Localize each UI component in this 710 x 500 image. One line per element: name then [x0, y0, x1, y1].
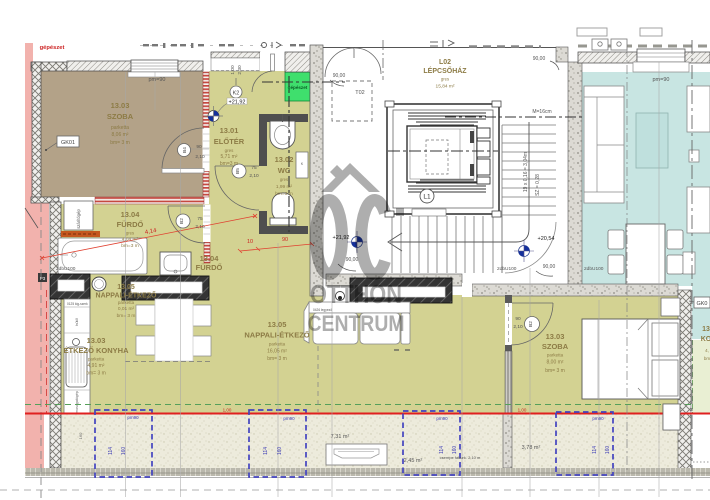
- svg-text:bm=3 m: bm=3 m: [121, 243, 138, 249]
- svg-text:2,10: 2,10: [195, 154, 205, 160]
- svg-text:160: 160: [78, 432, 83, 439]
- svg-text:2dbU100: 2dbU100: [584, 266, 604, 272]
- svg-text:7,31 m²: 7,31 m²: [331, 434, 350, 440]
- svg-text:15,84 m²: 15,84 m²: [436, 84, 455, 90]
- svg-text:90,00: 90,00: [533, 56, 546, 62]
- svg-text:bm=3 m: bm=3 m: [275, 191, 292, 197]
- svg-text:75: 75: [251, 165, 257, 171]
- svg-text:75: 75: [197, 216, 203, 222]
- svg-text:1,99 m²: 1,99 m²: [276, 184, 293, 190]
- svg-text:90: 90: [282, 237, 288, 243]
- svg-text:gépészet: gépészet: [40, 45, 65, 51]
- svg-text:parketta: parketta: [547, 353, 564, 358]
- svg-text:B2: B2: [528, 321, 534, 327]
- svg-text:bm= 3 m: bm= 3 m: [267, 356, 287, 362]
- svg-text:+21,92: +21,92: [229, 100, 246, 106]
- svg-text:pm90: pm90: [127, 415, 139, 420]
- svg-text:M=16cm: M=16cm: [532, 109, 551, 115]
- svg-text:160: 160: [277, 447, 283, 456]
- svg-text:2,10: 2,10: [195, 224, 205, 230]
- svg-text:0,01 m²: 0,01 m²: [118, 306, 135, 312]
- svg-text:parketta: parketta: [269, 342, 286, 347]
- svg-text:bm= 3 m: bm= 3 m: [117, 313, 136, 319]
- svg-text:2,45 m²: 2,45 m²: [404, 458, 423, 464]
- svg-text:OTTHON: OTTHON: [310, 279, 402, 309]
- svg-text:3,78 m²: 3,78 m²: [522, 445, 541, 451]
- svg-text:B4: B4: [182, 147, 188, 153]
- svg-text:10: 10: [247, 239, 253, 245]
- svg-text:FÜRDŐ: FÜRDŐ: [117, 220, 144, 229]
- svg-text:90,00: 90,00: [333, 73, 346, 79]
- svg-text:gépészet: gépészet: [288, 85, 308, 90]
- svg-text:90: 90: [196, 144, 202, 150]
- svg-text:114: 114: [263, 447, 269, 455]
- svg-text:1,00: 1,00: [518, 408, 527, 413]
- svg-text:SZ = 0,28: SZ = 0,28: [535, 174, 541, 196]
- svg-text:CENTRUM: CENTRUM: [308, 311, 405, 336]
- svg-text:13.03: 13.03: [546, 332, 565, 341]
- svg-text:13.01: 13.01: [220, 126, 239, 135]
- svg-text:pm=90: pm=90: [653, 77, 670, 83]
- svg-text:0125 kig-szerk: 0125 kig-szerk: [67, 302, 88, 306]
- svg-text:13.02: 13.02: [275, 155, 294, 164]
- svg-text:NAPPALI-ÉTKEZŐ: NAPPALI-ÉTKEZŐ: [96, 291, 157, 300]
- svg-text:mosogatógép: mosogatógép: [75, 391, 79, 413]
- svg-text:2dbU100: 2dbU100: [497, 266, 517, 272]
- svg-text:13.04: 13.04: [200, 254, 220, 263]
- svg-text:K2: K2: [233, 91, 240, 97]
- svg-text:GK0: GK0: [696, 301, 707, 307]
- svg-text:KO: KO: [701, 336, 710, 343]
- svg-text:L1: L1: [423, 194, 431, 201]
- svg-text:SZOBA: SZOBA: [542, 342, 569, 351]
- svg-text:13.04: 13.04: [121, 210, 141, 219]
- svg-text:13.05: 13.05: [117, 284, 135, 291]
- svg-text:pm90: pm90: [592, 416, 604, 421]
- svg-text:csempe faburk. 2,10 m: csempe faburk. 2,10 m: [440, 455, 481, 460]
- svg-text:gres: gres: [441, 77, 449, 82]
- svg-text:ELŐTÉR: ELŐTÉR: [214, 137, 245, 146]
- svg-text:160: 160: [605, 446, 611, 455]
- svg-text:WC: WC: [278, 166, 291, 175]
- svg-text:4,04 m²: 4,04 m²: [122, 237, 139, 243]
- svg-text:2,10: 2,10: [249, 173, 259, 179]
- svg-text:90: 90: [515, 316, 521, 322]
- svg-text:16,05 m²: 16,05 m²: [267, 349, 287, 355]
- svg-text:parketta: parketta: [118, 300, 135, 305]
- svg-text:114: 114: [439, 446, 445, 454]
- svg-text:5,71 m²: 5,71 m²: [221, 154, 238, 160]
- svg-text:2,30: 2,30: [237, 65, 243, 75]
- svg-text:parketta: parketta: [111, 125, 129, 131]
- svg-text:90,00: 90,00: [543, 264, 556, 270]
- svg-text:bm= 3 m: bm= 3 m: [86, 371, 106, 377]
- svg-text:13.03: 13.03: [111, 101, 130, 110]
- svg-text:pm90: pm90: [283, 416, 295, 421]
- svg-text:160: 160: [121, 447, 127, 456]
- svg-text:1,00: 1,00: [230, 65, 236, 75]
- svg-text:gres: gres: [225, 148, 235, 153]
- svg-text:19 x 0,16 = 3,04m: 19 x 0,16 = 3,04m: [523, 152, 529, 192]
- svg-text:4,91 m²: 4,91 m²: [88, 363, 105, 369]
- svg-text:NAPPALI-ÉTKEZŐ: NAPPALI-ÉTKEZŐ: [244, 331, 309, 340]
- svg-text:L02: L02: [439, 59, 451, 66]
- svg-text:gres: gres: [126, 231, 134, 236]
- svg-text:SZOBA: SZOBA: [107, 112, 134, 121]
- svg-text:114: 114: [108, 447, 114, 455]
- svg-text:114: 114: [592, 446, 598, 454]
- svg-text:FÜRDŐ: FÜRDŐ: [196, 263, 223, 272]
- svg-text:szárítógép: szárítógép: [76, 209, 81, 229]
- svg-text:hűtő: hűtő: [74, 317, 79, 326]
- svg-text:bm=3 m: bm=3 m: [220, 161, 238, 167]
- svg-text:T02: T02: [355, 90, 364, 96]
- svg-text:90,00: 90,00: [346, 257, 359, 263]
- svg-text:13.05: 13.05: [268, 320, 287, 329]
- svg-text:pm90: pm90: [436, 416, 448, 421]
- svg-text:ÉTKEZŐ KONYHA: ÉTKEZŐ KONYHA: [63, 346, 129, 355]
- svg-text:1,00: 1,00: [223, 408, 232, 413]
- svg-text:parketta: parketta: [88, 357, 105, 362]
- svg-text:bm= 3 m: bm= 3 m: [545, 368, 565, 374]
- svg-text:bm= 3 m: bm= 3 m: [110, 140, 130, 146]
- svg-text:2dbU100: 2dbU100: [56, 266, 76, 272]
- svg-text:B2: B2: [179, 218, 185, 224]
- svg-text:13: 13: [702, 326, 710, 333]
- svg-text:13.03: 13.03: [87, 336, 106, 345]
- svg-text:2,10: 2,10: [513, 324, 523, 330]
- svg-text:4,: 4,: [705, 348, 709, 353]
- svg-text:8,00 m²: 8,00 m²: [547, 360, 564, 366]
- svg-text:GK01: GK01: [61, 140, 75, 146]
- svg-text:8,06 m²: 8,06 m²: [112, 132, 129, 138]
- svg-text:160: 160: [452, 446, 458, 455]
- svg-text:gres: gres: [280, 177, 288, 182]
- svg-text:+20,54: +20,54: [538, 236, 555, 242]
- svg-text:LÉPCSŐHÁZ: LÉPCSŐHÁZ: [423, 66, 467, 75]
- svg-text:pm=90: pm=90: [149, 77, 166, 83]
- svg-text:B5: B5: [235, 168, 241, 174]
- svg-text:bm: bm: [704, 356, 710, 361]
